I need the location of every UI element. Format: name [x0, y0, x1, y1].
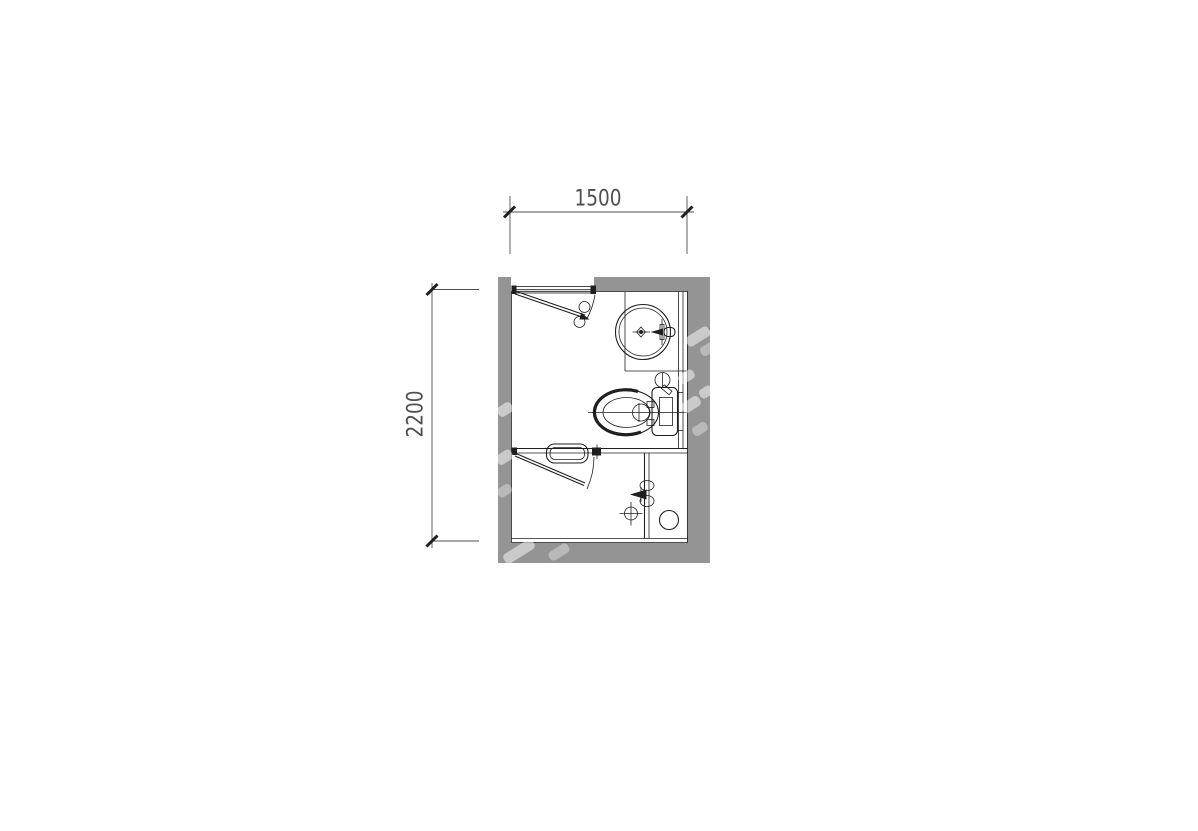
- washbasin-icon: [616, 305, 676, 360]
- shower-mixer-icon: [630, 481, 654, 507]
- dimension-top: 1500: [503, 187, 694, 255]
- dimension-left-label: 2200: [404, 391, 429, 438]
- toilet-icon: [588, 373, 687, 436]
- watermark: [494, 325, 717, 565]
- supply-valve-icon: [655, 373, 672, 395]
- dimension-left: 2200: [404, 283, 480, 548]
- shower-door-swing-icon: [512, 448, 595, 490]
- wall-left: [498, 277, 511, 563]
- wall-right: [687, 277, 710, 563]
- floor-drain-icon: [660, 511, 679, 530]
- floor-plan-canvas: 1500 2200: [0, 0, 1198, 831]
- faucet-icon: [651, 325, 676, 340]
- dimension-top-label: 1500: [575, 187, 622, 212]
- drain-cross-icon: [620, 502, 643, 526]
- towel-rail-icon: [547, 444, 602, 463]
